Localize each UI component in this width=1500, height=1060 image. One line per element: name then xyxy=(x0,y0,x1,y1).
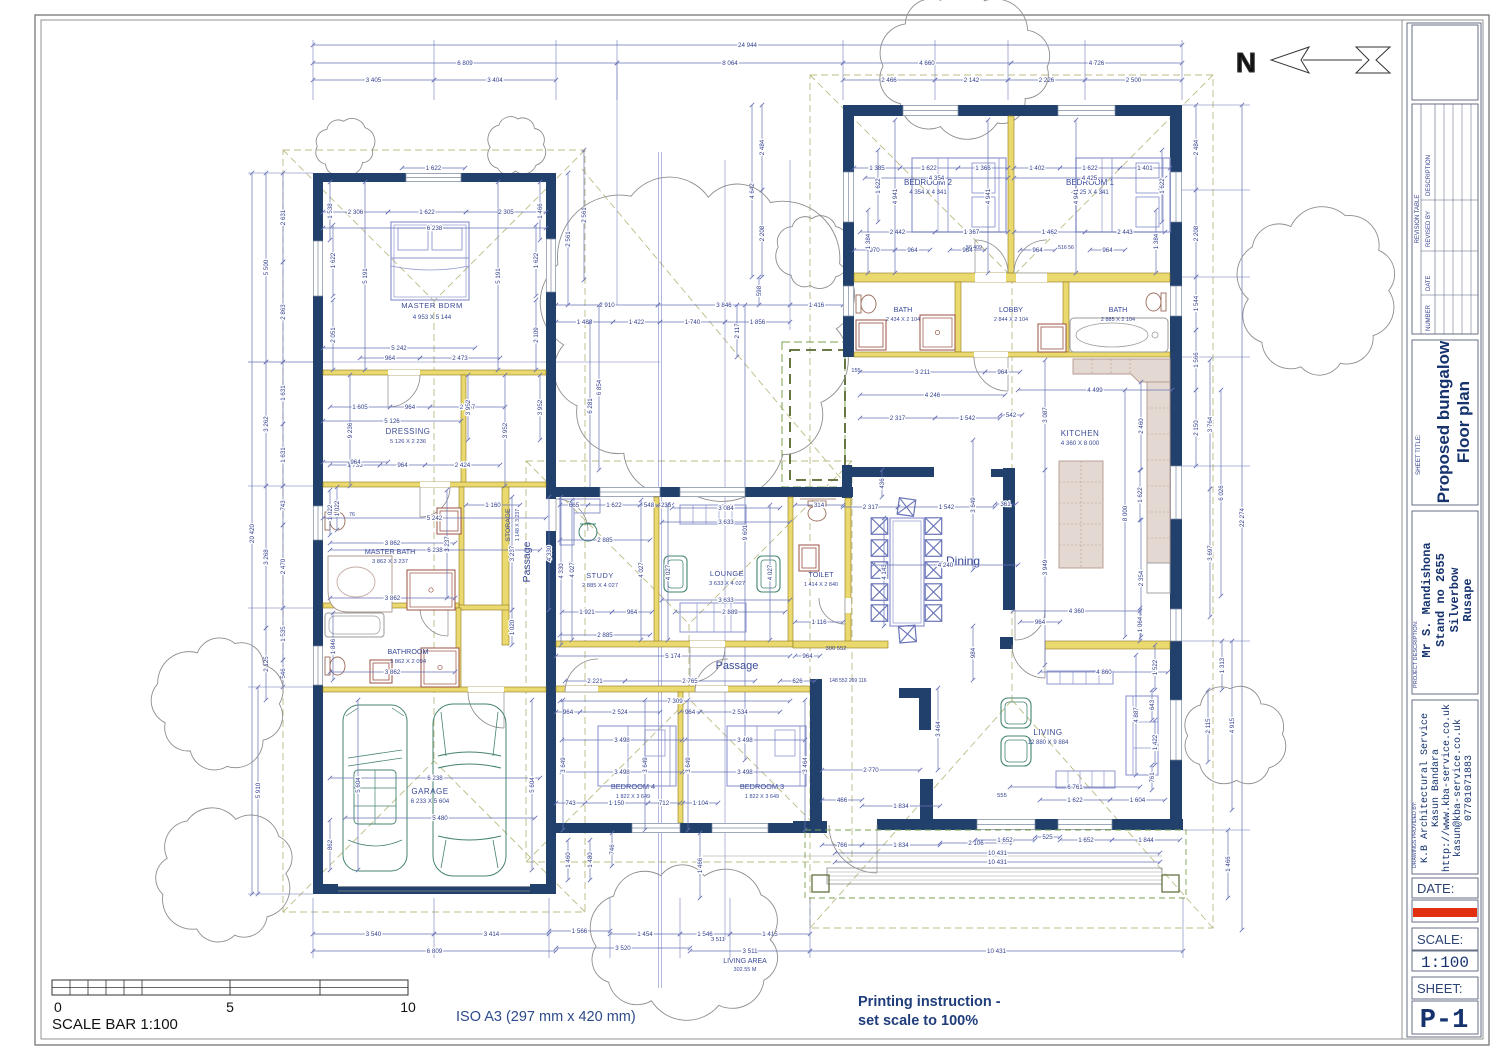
svg-text:6 809: 6 809 xyxy=(427,948,443,955)
svg-text:BEDROOM 3: BEDROOM 3 xyxy=(740,782,784,791)
svg-text:3 084: 3 084 xyxy=(718,505,734,512)
svg-text:2 115: 2 115 xyxy=(1205,718,1212,734)
svg-text:http://www.kba-service.co.uk: http://www.kba-service.co.uk xyxy=(1441,704,1453,872)
svg-text:2 460: 2 460 xyxy=(1138,418,1145,434)
svg-text:743: 743 xyxy=(280,500,287,511)
svg-text:2 305: 2 305 xyxy=(498,209,514,216)
svg-text:542: 542 xyxy=(1006,412,1017,419)
svg-text:2 561: 2 561 xyxy=(565,231,572,247)
svg-text:3 498: 3 498 xyxy=(737,737,753,744)
svg-text:525: 525 xyxy=(1042,834,1053,841)
svg-text:8 064: 8 064 xyxy=(722,60,738,67)
svg-text:436: 436 xyxy=(879,478,886,489)
svg-text:1 160: 1 160 xyxy=(485,502,501,509)
svg-text:300 552: 300 552 xyxy=(826,646,847,652)
svg-text:2 844 X 2 104: 2 844 X 2 104 xyxy=(994,317,1028,323)
svg-text:1 856: 1 856 xyxy=(750,319,766,326)
svg-text:1 604: 1 604 xyxy=(1130,797,1146,804)
svg-text:REVISED BY: REVISED BY xyxy=(1426,211,1432,247)
svg-text:964: 964 xyxy=(802,653,813,660)
svg-text:24 944: 24 944 xyxy=(738,42,757,49)
svg-text:2 631: 2 631 xyxy=(280,209,287,225)
svg-text:2 106: 2 106 xyxy=(968,840,984,847)
svg-text:1 116: 1 116 xyxy=(811,619,827,626)
svg-text:964: 964 xyxy=(907,247,918,254)
svg-text:2 317: 2 317 xyxy=(863,504,879,511)
svg-text:2 470: 2 470 xyxy=(280,558,287,574)
svg-text:3 846: 3 846 xyxy=(716,302,732,309)
svg-text:6 026: 6 026 xyxy=(1218,485,1225,501)
svg-text:3 697: 3 697 xyxy=(1207,545,1214,561)
svg-text:PROJECT DESCRIPTION:: PROJECT DESCRIPTION: xyxy=(1413,620,1419,688)
svg-text:4 330: 4 330 xyxy=(546,545,553,561)
svg-text:2 208: 2 208 xyxy=(759,225,766,241)
svg-text:1 367: 1 367 xyxy=(964,229,980,236)
svg-text:4 330: 4 330 xyxy=(558,563,565,579)
svg-text:546: 546 xyxy=(280,668,287,679)
svg-text:1 622: 1 622 xyxy=(1137,487,1144,503)
svg-text:964: 964 xyxy=(685,709,696,716)
svg-text:2 484: 2 484 xyxy=(759,139,766,155)
svg-text:4 642: 4 642 xyxy=(749,183,756,199)
svg-text:LIVING: LIVING xyxy=(1033,728,1062,737)
svg-text:K.B Architectural Service: K.B Architectural Service xyxy=(1419,713,1431,863)
svg-text:2 885 X 4 027: 2 885 X 4 027 xyxy=(582,583,618,589)
svg-text:4 941: 4 941 xyxy=(1073,188,1080,204)
svg-text:4 354: 4 354 xyxy=(929,175,945,182)
svg-text:1 566: 1 566 xyxy=(1193,352,1200,368)
svg-text:8 000: 8 000 xyxy=(1122,505,1129,521)
svg-text:1 538: 1 538 xyxy=(327,203,334,219)
svg-text:MASTER BDRM: MASTER BDRM xyxy=(401,301,463,310)
svg-text:1 022: 1 022 xyxy=(334,500,341,516)
svg-text:5: 5 xyxy=(226,999,234,1015)
svg-text:3 540: 3 540 xyxy=(366,931,382,938)
svg-text:1 064: 1 064 xyxy=(1137,616,1144,632)
svg-text:2 524: 2 524 xyxy=(612,709,628,716)
svg-text:1 466: 1 466 xyxy=(537,203,544,219)
svg-text:5 604: 5 604 xyxy=(529,777,536,793)
svg-text:2 442: 2 442 xyxy=(890,229,906,236)
svg-text:1 535: 1 535 xyxy=(280,626,287,642)
svg-text:2 150: 2 150 xyxy=(1193,420,1200,436)
svg-text:1 652: 1 652 xyxy=(1078,837,1094,844)
svg-text:643: 643 xyxy=(1149,699,1156,710)
svg-text:746: 746 xyxy=(609,844,616,855)
svg-text:1 622: 1 622 xyxy=(606,502,622,509)
svg-text:1 384: 1 384 xyxy=(1153,233,1160,249)
svg-text:4 240: 4 240 xyxy=(938,562,954,569)
svg-text:2 317: 2 317 xyxy=(890,415,906,422)
svg-text:6 809: 6 809 xyxy=(457,60,473,67)
svg-text:964: 964 xyxy=(397,462,408,469)
svg-text:4 027: 4 027 xyxy=(767,564,774,580)
svg-text:2 466: 2 466 xyxy=(881,77,897,84)
svg-text:4 027: 4 027 xyxy=(569,562,576,578)
svg-text:1 488: 1 488 xyxy=(577,319,593,326)
svg-text:1 566: 1 566 xyxy=(572,928,588,935)
svg-text:1 622: 1 622 xyxy=(1067,797,1083,804)
svg-text:964: 964 xyxy=(997,369,1008,376)
svg-text:984: 984 xyxy=(970,647,977,658)
svg-text:Passage: Passage xyxy=(716,660,759,672)
svg-text:4 246: 4 246 xyxy=(925,392,941,399)
svg-text:314: 314 xyxy=(814,502,825,509)
svg-text:3 862: 3 862 xyxy=(385,595,401,602)
svg-text:2 306: 2 306 xyxy=(348,209,364,216)
svg-text:1 622: 1 622 xyxy=(419,209,435,216)
svg-text:0: 0 xyxy=(54,999,62,1015)
svg-text:761: 761 xyxy=(1149,772,1156,783)
svg-text:LIVING AREA: LIVING AREA xyxy=(723,958,767,965)
svg-text:4 887: 4 887 xyxy=(1133,707,1140,723)
svg-text:1 622: 1 622 xyxy=(330,252,337,268)
svg-text:2 863: 2 863 xyxy=(280,304,287,320)
svg-text:3 952: 3 952 xyxy=(502,422,509,438)
svg-text:4 027: 4 027 xyxy=(665,564,672,580)
svg-text:1 522: 1 522 xyxy=(1152,659,1159,675)
svg-text:3 464: 3 464 xyxy=(935,721,942,737)
svg-text:964: 964 xyxy=(1035,619,1046,626)
svg-text:712: 712 xyxy=(659,800,670,807)
svg-text:3 262: 3 262 xyxy=(263,416,270,432)
svg-text:1 020: 1 020 xyxy=(509,619,516,635)
svg-text:Stand no 2655: Stand no 2655 xyxy=(1434,553,1448,647)
svg-text:2 561: 2 561 xyxy=(581,207,588,223)
svg-text:1 414 X 2 840: 1 414 X 2 840 xyxy=(804,582,838,588)
svg-text:BATH: BATH xyxy=(894,305,913,314)
svg-text:626: 626 xyxy=(792,678,803,685)
svg-text:1 401: 1 401 xyxy=(1137,165,1153,172)
svg-text:4 499: 4 499 xyxy=(1087,387,1103,394)
svg-text:1 422: 1 422 xyxy=(629,319,645,326)
svg-text:1 462: 1 462 xyxy=(1042,229,1058,236)
svg-text:5 242: 5 242 xyxy=(427,515,443,522)
svg-text:1 622: 1 622 xyxy=(921,165,937,172)
svg-text:N: N xyxy=(1236,47,1256,78)
svg-text:DESCRIPTION: DESCRIPTION xyxy=(1426,155,1432,196)
svg-text:3 649: 3 649 xyxy=(970,497,977,513)
svg-text:6 238: 6 238 xyxy=(427,225,443,232)
svg-text:5 191: 5 191 xyxy=(362,268,369,284)
svg-text:4 915: 4 915 xyxy=(1229,717,1236,733)
svg-text:20 420: 20 420 xyxy=(249,523,256,542)
svg-text:set scale to 100%: set scale to 100% xyxy=(858,1013,978,1029)
svg-text:BATHROOM: BATHROOM xyxy=(388,647,429,656)
svg-text:DATE: DATE xyxy=(1426,275,1432,291)
svg-text:4 941: 4 941 xyxy=(892,188,899,204)
svg-text:10: 10 xyxy=(400,999,416,1015)
svg-text:DRAWINGS PROVIDED BY:: DRAWINGS PROVIDED BY: xyxy=(1412,802,1418,868)
svg-text:2 051: 2 051 xyxy=(330,327,337,343)
svg-text:1 104: 1 104 xyxy=(693,800,709,807)
svg-text:1 366: 1 366 xyxy=(975,165,991,172)
svg-text:3 498: 3 498 xyxy=(614,737,630,744)
svg-text:SCALE:: SCALE: xyxy=(1417,932,1463,947)
svg-text:Proposed bungalow: Proposed bungalow xyxy=(1434,340,1453,503)
svg-text:2 534: 2 534 xyxy=(732,709,748,716)
svg-text:2 221: 2 221 xyxy=(587,678,603,685)
svg-text:10 431: 10 431 xyxy=(988,859,1007,866)
svg-text:5 242: 5 242 xyxy=(391,345,407,352)
svg-text:DATE:: DATE: xyxy=(1417,881,1454,896)
svg-text:1 631: 1 631 xyxy=(280,385,287,401)
svg-text:kasun@kba-service.co.uk: kasun@kba-service.co.uk xyxy=(1452,719,1464,857)
svg-text:10 431: 10 431 xyxy=(988,850,1007,857)
svg-text:3 511: 3 511 xyxy=(742,948,758,955)
svg-text:1 622: 1 622 xyxy=(426,165,442,172)
svg-text:1 542: 1 542 xyxy=(960,415,976,422)
svg-text:3 862 X 3 237: 3 862 X 3 237 xyxy=(372,559,408,565)
svg-text:2 109: 2 109 xyxy=(533,327,540,343)
svg-text:964: 964 xyxy=(627,609,638,616)
svg-text:3 633 X 4 027: 3 633 X 4 027 xyxy=(709,581,745,587)
svg-text:3 511: 3 511 xyxy=(711,937,725,943)
svg-text:555: 555 xyxy=(997,793,1007,799)
svg-text:6 238: 6 238 xyxy=(427,547,443,554)
svg-text:2 117: 2 117 xyxy=(734,323,741,339)
svg-text:3 268: 3 268 xyxy=(263,549,270,565)
svg-text:2 885: 2 885 xyxy=(597,632,613,639)
svg-text:466: 466 xyxy=(837,797,848,804)
svg-text:3 520: 3 520 xyxy=(615,945,631,952)
svg-text:LOBBY: LOBBY xyxy=(999,305,1023,314)
svg-text:2 910: 2 910 xyxy=(599,302,615,309)
svg-text:3 237: 3 237 xyxy=(509,545,516,561)
svg-text:4 660: 4 660 xyxy=(919,60,935,67)
svg-text:3 404: 3 404 xyxy=(487,77,503,84)
svg-text:GARAGE: GARAGE xyxy=(411,787,448,796)
svg-text:5 191: 5 191 xyxy=(495,268,502,284)
svg-text:3 211: 3 211 xyxy=(915,369,931,376)
svg-text:76: 76 xyxy=(349,512,355,518)
svg-text:1:100: 1:100 xyxy=(1421,954,1469,972)
svg-text:1 652: 1 652 xyxy=(997,837,1013,844)
svg-text:964: 964 xyxy=(1102,247,1113,254)
svg-text:516 56: 516 56 xyxy=(1058,245,1074,251)
svg-text:3 862 X 2 094: 3 862 X 2 094 xyxy=(390,659,427,665)
svg-text:3 862: 3 862 xyxy=(385,669,401,676)
svg-text:3 949: 3 949 xyxy=(1042,559,1049,575)
svg-text:22 274: 22 274 xyxy=(1239,507,1246,526)
svg-text:2 770: 2 770 xyxy=(863,767,879,774)
svg-text:3 952: 3 952 xyxy=(537,399,544,415)
svg-text:4 027: 4 027 xyxy=(638,562,645,578)
svg-text:3 764: 3 764 xyxy=(1207,416,1214,432)
svg-text:SCALE BAR 1:100: SCALE BAR 1:100 xyxy=(52,1016,178,1033)
svg-text:NUMBER: NUMBER xyxy=(1426,304,1432,331)
svg-text:2 885: 2 885 xyxy=(597,537,613,544)
svg-text:2 424: 2 424 xyxy=(455,462,471,469)
svg-text:Passage: Passage xyxy=(521,541,533,582)
svg-text:665: 665 xyxy=(569,502,580,509)
svg-text:12 880 X 9 884: 12 880 X 9 884 xyxy=(1028,740,1069,746)
svg-text:6 761: 6 761 xyxy=(1067,784,1083,791)
svg-text:ISO A3 (297 mm x 420 mm): ISO A3 (297 mm x 420 mm) xyxy=(456,1009,636,1025)
svg-text:1 415: 1 415 xyxy=(762,931,778,938)
svg-text:361: 361 xyxy=(1000,501,1011,508)
svg-text:3 405: 3 405 xyxy=(366,77,382,84)
svg-text:598: 598 xyxy=(756,285,763,296)
svg-text:3 464: 3 464 xyxy=(802,757,809,773)
svg-text:2 484: 2 484 xyxy=(1193,139,1200,155)
svg-text:DRESSING: DRESSING xyxy=(386,427,431,436)
svg-text:3 498: 3 498 xyxy=(737,769,753,776)
svg-text:1 622: 1 622 xyxy=(533,252,540,268)
svg-text:2 765: 2 765 xyxy=(682,678,698,685)
svg-text:Rusape: Rusape xyxy=(1461,578,1475,621)
svg-text:1 542: 1 542 xyxy=(939,504,955,511)
svg-text:1 384: 1 384 xyxy=(865,233,872,249)
svg-text:3 414: 3 414 xyxy=(484,931,500,938)
svg-text:1 150: 1 150 xyxy=(609,800,625,807)
svg-text:5 910: 5 910 xyxy=(255,782,262,798)
svg-text:964: 964 xyxy=(350,459,361,466)
svg-text:743: 743 xyxy=(565,800,576,807)
svg-text:1 622: 1 622 xyxy=(875,178,882,194)
svg-text:LOUNGE: LOUNGE xyxy=(710,569,744,578)
svg-text:2 885 X 2 104: 2 885 X 2 104 xyxy=(1101,317,1135,323)
svg-text:5 480: 5 480 xyxy=(432,815,448,822)
svg-text:BEDROOM 4: BEDROOM 4 xyxy=(611,782,655,791)
svg-text:1 921: 1 921 xyxy=(579,609,595,616)
svg-text:5 126 X 2 236: 5 126 X 2 236 xyxy=(390,439,426,445)
svg-text:2 500: 2 500 xyxy=(1126,77,1142,84)
svg-text:1 605: 1 605 xyxy=(352,404,368,411)
svg-text:Printing instruction -: Printing instruction - xyxy=(858,994,1001,1010)
svg-text:BATH: BATH xyxy=(1109,305,1128,314)
svg-text:SHEET TITLE:: SHEET TITLE: xyxy=(1415,434,1422,475)
svg-text:1 313: 1 313 xyxy=(1219,657,1226,673)
svg-text:1 466: 1 466 xyxy=(1225,856,1232,872)
svg-text:1 834: 1 834 xyxy=(893,803,909,810)
svg-text:3 649: 3 649 xyxy=(642,757,649,773)
svg-text:1 622: 1 622 xyxy=(1159,178,1166,194)
svg-text:766: 766 xyxy=(837,842,848,849)
svg-text:5 604: 5 604 xyxy=(355,777,362,793)
svg-text:1 622: 1 622 xyxy=(1082,165,1098,172)
svg-text:TOILET: TOILET xyxy=(808,570,834,579)
svg-text:2 354: 2 354 xyxy=(1138,570,1145,586)
svg-text:1 740: 1 740 xyxy=(685,319,701,326)
svg-text:6 281: 6 281 xyxy=(587,398,594,414)
svg-text:2 473: 2 473 xyxy=(452,355,468,362)
svg-text:1 480: 1 480 xyxy=(587,852,594,868)
svg-text:1 631: 1 631 xyxy=(280,447,287,463)
svg-text:6 238: 6 238 xyxy=(427,775,443,782)
svg-text:964: 964 xyxy=(1032,247,1043,254)
svg-text:548: 548 xyxy=(644,502,655,509)
svg-text:4 354 X 4 341: 4 354 X 4 341 xyxy=(909,190,947,196)
svg-text:3 633: 3 633 xyxy=(718,519,734,526)
svg-text:KITCHEN: KITCHEN xyxy=(1061,429,1100,438)
svg-text:10 431: 10 431 xyxy=(987,948,1006,955)
svg-text:Mr S. Mandishona: Mr S. Mandishona xyxy=(1420,542,1434,657)
svg-text:964: 964 xyxy=(385,355,396,362)
svg-text:1 544: 1 544 xyxy=(1193,295,1200,311)
svg-text:1 416: 1 416 xyxy=(809,302,825,309)
svg-text:148 552 269 116: 148 552 269 116 xyxy=(829,678,866,684)
svg-text:4 953 X 5 144: 4 953 X 5 144 xyxy=(413,314,452,321)
svg-text:2 125: 2 125 xyxy=(263,656,270,672)
svg-text:2 142: 2 142 xyxy=(964,77,980,84)
svg-text:Kasun Bandara: Kasun Bandara xyxy=(1430,749,1442,827)
svg-text:3 633: 3 633 xyxy=(718,597,734,604)
svg-text:SHEET:: SHEET: xyxy=(1417,981,1463,996)
svg-text:9 236: 9 236 xyxy=(347,422,354,438)
svg-text:2 208: 2 208 xyxy=(1193,225,1200,241)
svg-text:Silverbow: Silverbow xyxy=(1448,567,1462,633)
svg-text:3 498: 3 498 xyxy=(614,769,630,776)
svg-text:5 174: 5 174 xyxy=(665,653,681,660)
svg-text:3 087: 3 087 xyxy=(1042,407,1049,423)
svg-text:2 889: 2 889 xyxy=(722,609,738,616)
svg-text:1 466: 1 466 xyxy=(697,857,704,873)
svg-text:302.55 M: 302.55 M xyxy=(734,967,757,973)
svg-text:4 941: 4 941 xyxy=(985,188,992,204)
svg-text:1 460: 1 460 xyxy=(565,852,572,868)
svg-text:964: 964 xyxy=(405,404,416,411)
svg-text:9 601: 9 601 xyxy=(742,524,749,540)
svg-text:1 454: 1 454 xyxy=(637,931,653,938)
svg-text:56 409: 56 409 xyxy=(966,245,982,251)
svg-text:5 126: 5 126 xyxy=(384,418,400,425)
svg-text:155: 155 xyxy=(851,368,860,374)
svg-text:1 385: 1 385 xyxy=(869,165,885,172)
svg-text:964: 964 xyxy=(563,709,574,716)
svg-text:1 402: 1 402 xyxy=(1029,165,1045,172)
svg-text:7 309: 7 309 xyxy=(667,698,683,705)
svg-text:07701071883: 07701071883 xyxy=(1464,755,1475,821)
svg-text:REVISION TABLE: REVISION TABLE xyxy=(1415,195,1421,244)
svg-text:2 443: 2 443 xyxy=(1117,229,1133,236)
svg-text:2 434 X 2 104: 2 434 X 2 104 xyxy=(886,317,920,323)
svg-text:6 233 X 5 604: 6 233 X 5 604 xyxy=(411,798,450,805)
svg-text:Floor plan: Floor plan xyxy=(1454,381,1473,463)
svg-text:4 360 X 8 000: 4 360 X 8 000 xyxy=(1061,440,1100,447)
svg-text:862: 862 xyxy=(327,839,334,850)
svg-text:MASTER BATH: MASTER BATH xyxy=(365,547,416,556)
svg-text:4 143: 4 143 xyxy=(881,564,888,580)
svg-text:6 854: 6 854 xyxy=(596,379,603,395)
svg-text:3 862: 3 862 xyxy=(385,540,401,547)
svg-text:4 425: 4 425 xyxy=(1082,175,1098,182)
svg-text:1 422: 1 422 xyxy=(1152,734,1159,750)
svg-text:1 148 X 3 237: 1 148 X 3 237 xyxy=(515,509,521,541)
svg-text:1 822 X 3 649: 1 822 X 3 649 xyxy=(745,794,779,800)
svg-text:4 860: 4 860 xyxy=(1096,669,1112,676)
svg-text:1 844: 1 844 xyxy=(1138,837,1154,844)
svg-text:3 649: 3 649 xyxy=(560,757,567,773)
svg-text:4 726: 4 726 xyxy=(1089,60,1105,67)
svg-text:4 360: 4 360 xyxy=(1069,608,1085,615)
svg-text:3 237: 3 237 xyxy=(444,536,451,552)
svg-text:STORAGE: STORAGE xyxy=(505,508,512,542)
svg-text:1 846: 1 846 xyxy=(330,638,337,654)
svg-text:STUDY: STUDY xyxy=(586,571,614,580)
svg-text:3 952: 3 952 xyxy=(465,399,472,415)
svg-text:P-1: P-1 xyxy=(1420,1006,1469,1036)
svg-text:1 834: 1 834 xyxy=(893,842,909,849)
svg-text:5 500: 5 500 xyxy=(263,259,270,275)
svg-text:3 649: 3 649 xyxy=(685,757,692,773)
